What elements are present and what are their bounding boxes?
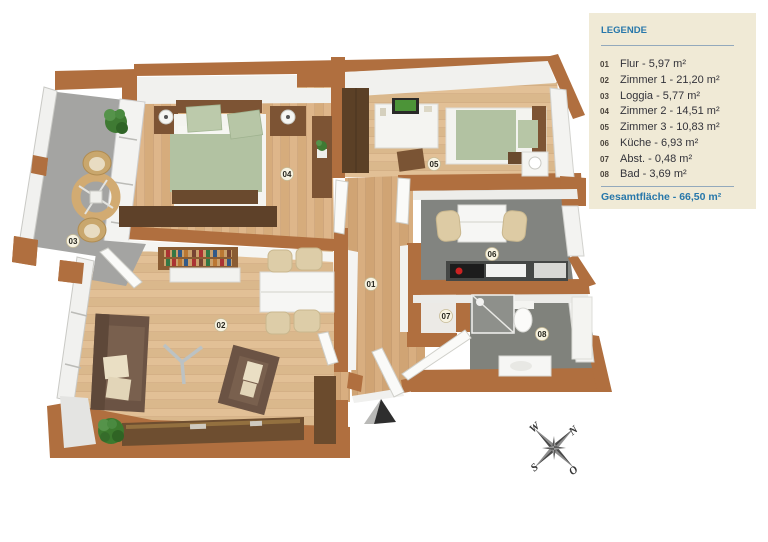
svg-text:04: 04	[283, 170, 292, 179]
svg-text:08: 08	[538, 330, 547, 339]
svg-text:05: 05	[430, 160, 439, 169]
svg-text:02: 02	[217, 321, 226, 330]
svg-text:03: 03	[69, 237, 78, 246]
svg-text:06: 06	[488, 250, 497, 259]
svg-text:07: 07	[442, 312, 451, 321]
svg-text:01: 01	[367, 280, 376, 289]
